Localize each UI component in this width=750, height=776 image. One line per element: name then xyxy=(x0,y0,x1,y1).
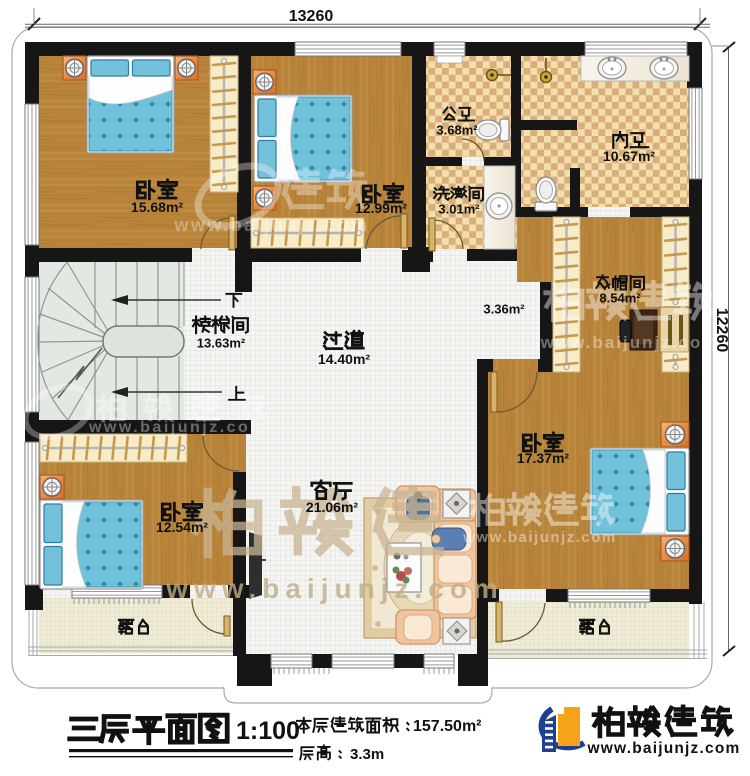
svg-text:1:100: 1:100 xyxy=(236,717,300,745)
svg-text:12.99m²: 12.99m² xyxy=(355,200,407,216)
svg-text:8.54m²: 8.54m² xyxy=(599,291,641,306)
svg-text:3.3m: 3.3m xyxy=(350,746,384,763)
svg-text:www.baijunjz.com: www.baijunjz.com xyxy=(587,740,741,757)
svg-text:www.baijunjz.com: www.baijunjz.com xyxy=(88,419,267,436)
svg-text:13260: 13260 xyxy=(289,8,334,25)
svg-text:3.36m²: 3.36m² xyxy=(483,302,525,317)
svg-text:12.54m²: 12.54m² xyxy=(156,519,208,535)
svg-text:17.37m²: 17.37m² xyxy=(517,450,569,466)
svg-text:www.baijunjz.com: www.baijunjz.com xyxy=(540,333,720,352)
svg-text:3.01m²: 3.01m² xyxy=(438,202,480,217)
svg-text:13.63m²: 13.63m² xyxy=(197,336,246,351)
svg-text:10.67m²: 10.67m² xyxy=(603,148,655,164)
svg-text:15.68m²: 15.68m² xyxy=(131,199,183,215)
svg-text:21.06m²: 21.06m² xyxy=(306,499,358,515)
svg-text:www.baijunjz.com: www.baijunjz.com xyxy=(173,215,369,235)
svg-text:3.68m²: 3.68m² xyxy=(436,123,478,138)
svg-text:14.40m²: 14.40m² xyxy=(318,351,370,367)
svg-text:www.baijunjz.com: www.baijunjz.com xyxy=(462,529,616,546)
svg-text:157.50m²: 157.50m² xyxy=(413,718,482,735)
svg-text:www.baijunjz.com: www.baijunjz.com xyxy=(165,573,504,604)
